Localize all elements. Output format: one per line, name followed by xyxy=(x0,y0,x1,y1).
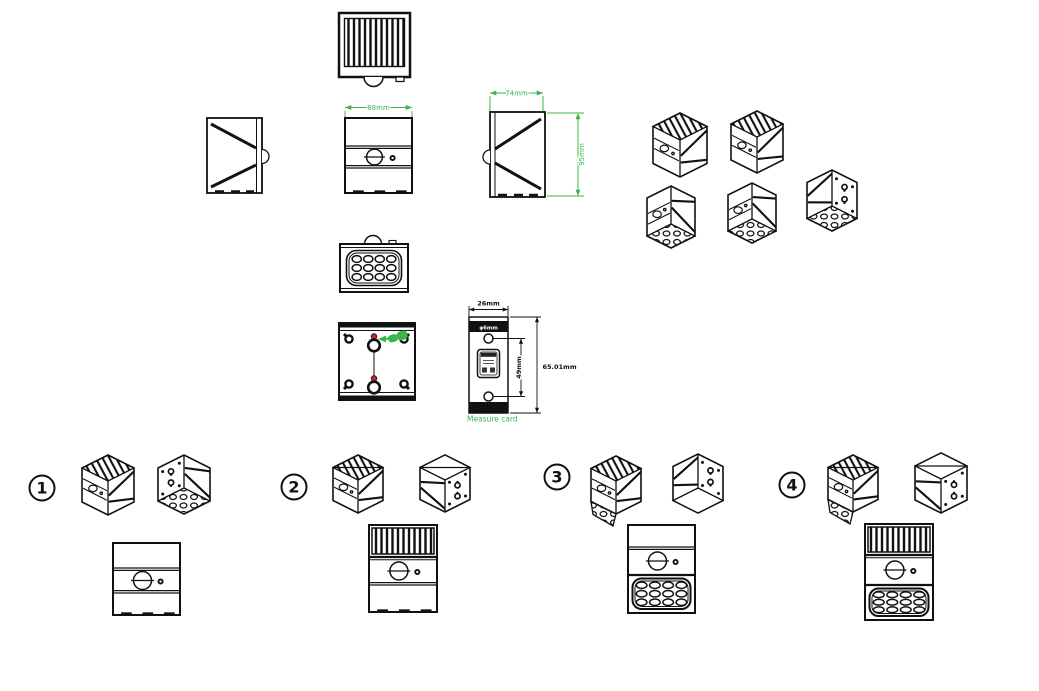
variant-2-iso-front xyxy=(333,455,383,513)
front-view xyxy=(345,118,412,193)
dim-hole-spacing-label: 49mm xyxy=(515,356,523,379)
dim-front-width-label: 88mm xyxy=(367,104,390,112)
sensor-bump xyxy=(365,236,382,245)
card-hole-diameter-label: φ6mm xyxy=(479,326,497,332)
technical-drawing-canvas: 88mm 74mm 95mm xyxy=(0,0,1039,691)
measure-card-caption: Measure card xyxy=(467,415,518,424)
variant-2-iso-back xyxy=(420,455,470,512)
iso-view-bottom-2 xyxy=(728,183,776,243)
variant-1-iso-back xyxy=(158,455,210,514)
side-view-left xyxy=(207,118,269,193)
variant-3-group: 3 xyxy=(545,454,724,613)
dim-card-width-label: 26mm xyxy=(477,300,500,308)
variant-4-group: 4 xyxy=(780,453,968,620)
iso-view-front-top-1 xyxy=(653,113,707,177)
dimension-front-width: 88mm xyxy=(345,104,412,117)
variant-4-iso-front xyxy=(828,455,878,524)
card-hole-bottom xyxy=(484,392,493,401)
variant-4-number: 4 xyxy=(786,476,797,495)
top-view-solar-panel xyxy=(339,13,410,87)
dim-depth-label: 74mm xyxy=(505,90,528,98)
solar-lamp-drawing: 88mm 74mm 95mm xyxy=(0,0,1039,691)
variant-1-front-view xyxy=(113,543,180,615)
variant-1-number: 1 xyxy=(36,479,47,498)
variant-2-group: 2 xyxy=(282,455,471,612)
dim-height-label: 95mm xyxy=(578,143,586,166)
measure-card-drawing: φ6mm 26mm 49mm 65.01 xyxy=(467,300,577,424)
variant-4-front-view xyxy=(865,524,933,620)
card-center-graphic xyxy=(478,350,500,378)
dimension-height: 95mm xyxy=(547,113,586,196)
dimension-card-width: 26mm xyxy=(469,300,508,317)
sensor-bump xyxy=(262,150,269,164)
dimension-depth: 74mm xyxy=(490,90,543,112)
sensor-bump xyxy=(364,77,383,87)
card-hole-top xyxy=(484,334,493,343)
iso-view-bottom-1 xyxy=(647,186,695,248)
variant-1-iso-front xyxy=(82,455,134,515)
variant-4-iso-back xyxy=(915,453,967,513)
variant-3-number: 3 xyxy=(551,468,562,487)
iso-view-back-bottom xyxy=(807,170,857,231)
sensor-bump xyxy=(483,150,490,164)
iso-cluster xyxy=(647,111,857,248)
variant-3-front-view xyxy=(628,525,695,613)
variant-3-iso-front xyxy=(591,456,641,526)
variant-1-group: 1 xyxy=(30,455,211,615)
dim-card-height-label: 65.01mm xyxy=(543,363,577,371)
iso-view-front-top-2 xyxy=(731,111,783,173)
variant-2-number: 2 xyxy=(288,478,299,497)
variant-2-front-view xyxy=(369,525,437,612)
bottom-view-led xyxy=(340,236,408,293)
variant-3-iso-back xyxy=(673,454,723,513)
back-view-mounting xyxy=(339,323,415,400)
side-view-right xyxy=(483,112,545,197)
